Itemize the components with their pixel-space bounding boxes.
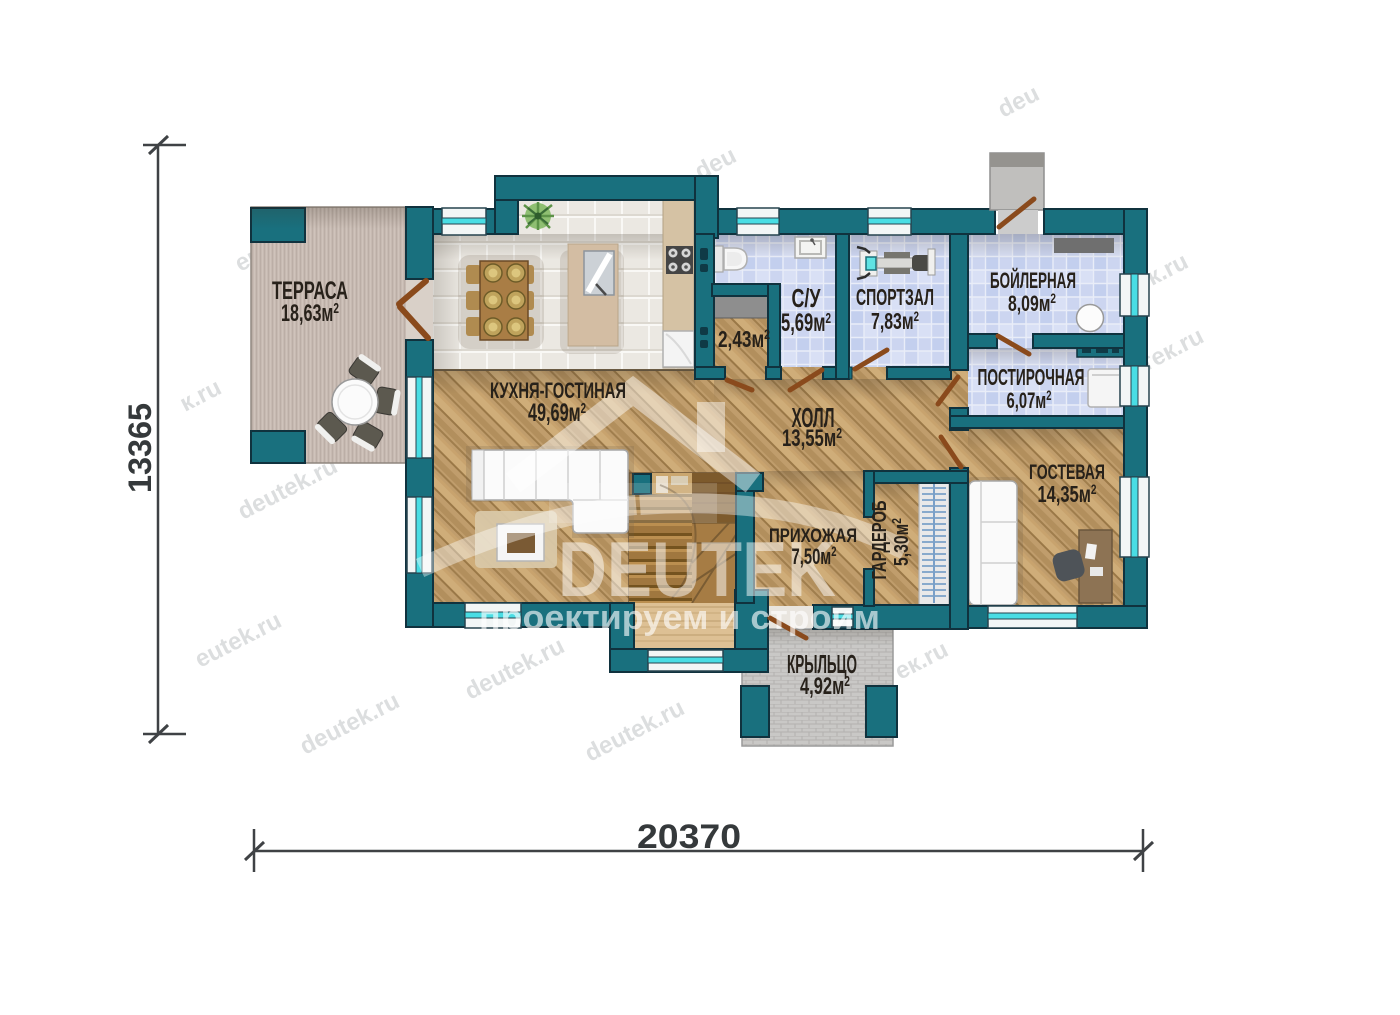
svg-text:8,09м2: 8,09м2: [1008, 290, 1056, 316]
svg-text:4,92м2: 4,92м2: [800, 673, 850, 700]
svg-text:14,35м2: 14,35м2: [1038, 481, 1097, 507]
svg-text:5,30м2: 5,30м2: [889, 518, 913, 566]
svg-text:5,69м2: 5,69м2: [781, 309, 831, 337]
svg-text:ПОСТИРОЧНАЯ: ПОСТИРОЧНАЯ: [978, 364, 1085, 390]
svg-text:18,63м2: 18,63м2: [281, 300, 339, 327]
svg-text:проектируем и строим: проектируем и строим: [479, 599, 880, 637]
svg-text:2,43м2: 2,43м2: [718, 326, 770, 352]
svg-text:13365: 13365: [122, 403, 158, 493]
svg-text:6,07м2: 6,07м2: [1007, 387, 1052, 413]
svg-text:7,83м2: 7,83м2: [871, 308, 919, 334]
svg-text:БОЙЛЕРНАЯ: БОЙЛЕРНАЯ: [990, 268, 1076, 293]
svg-text:20370: 20370: [637, 818, 741, 856]
svg-text:СПОРТЗАЛ: СПОРТЗАЛ: [856, 284, 934, 310]
svg-text:7,50м2: 7,50м2: [792, 543, 837, 569]
svg-text:ГАРДЕРОБ: ГАРДЕРОБ: [869, 501, 891, 580]
svg-text:49,69м2: 49,69м2: [528, 399, 586, 427]
svg-text:13,55м2: 13,55м2: [782, 425, 842, 452]
